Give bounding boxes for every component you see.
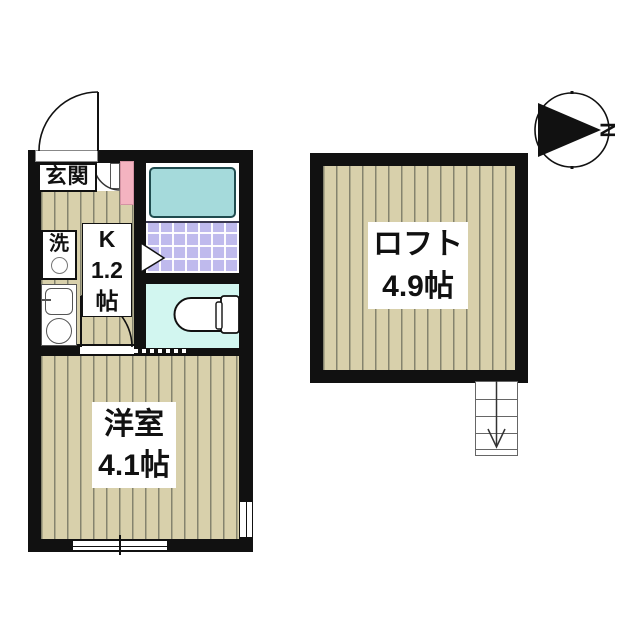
kitchen-counter (41, 284, 77, 346)
entrance-label: 玄関 (38, 163, 97, 192)
bathroom-tile-floor (146, 221, 239, 273)
stove-burner-icon (46, 318, 72, 344)
western-room-name: 洋室 (104, 404, 164, 445)
stair-step (476, 449, 517, 450)
bottom-window-center-tick (119, 535, 121, 555)
kitchen-label-line: 帖 (96, 286, 119, 317)
compass-icon: N (535, 91, 619, 169)
stair-step (476, 416, 517, 417)
kitchen-label-line: 1.2 (91, 255, 123, 286)
kitchen-label-line: K (99, 224, 116, 255)
washer-drum-icon (51, 257, 68, 274)
stairs-icon (475, 381, 518, 456)
north-label: N (596, 122, 619, 137)
stair-step (476, 399, 517, 400)
western-room-label: 洋室 4.1帖 (92, 402, 176, 488)
kitchen-door-opening (80, 346, 134, 354)
wall-dashed-opening (134, 349, 188, 353)
washing-machine-icon: 洗 (41, 230, 77, 280)
washer-label-text: 洗 (49, 232, 69, 256)
loft-label: ロフト 4.9帖 (368, 222, 468, 309)
entrance-door-icon (39, 92, 98, 151)
floorplan-canvas: N 玄関 洗 K 1.2 帖 洋室 4.1帖 ロフト 4.9帖 (0, 0, 640, 640)
kitchen-label: K 1.2 帖 (82, 223, 132, 317)
window-mullion (246, 502, 247, 537)
loft-name: ロフト (373, 224, 463, 266)
entrance-label-text: 玄関 (46, 166, 90, 188)
loft-size: 4.9帖 (382, 266, 454, 308)
interior-door-leaf (110, 163, 120, 189)
entrance-door-opening (35, 150, 98, 162)
bathtub-icon (149, 167, 236, 218)
kitchen-sink-icon (45, 288, 73, 315)
bathroom-door-panel (120, 161, 134, 205)
western-room-size: 4.1帖 (98, 445, 170, 486)
side-window-icon (239, 501, 253, 538)
faucet-icon (42, 299, 51, 301)
toilet-room-floor (146, 284, 239, 348)
stair-step (476, 433, 517, 434)
